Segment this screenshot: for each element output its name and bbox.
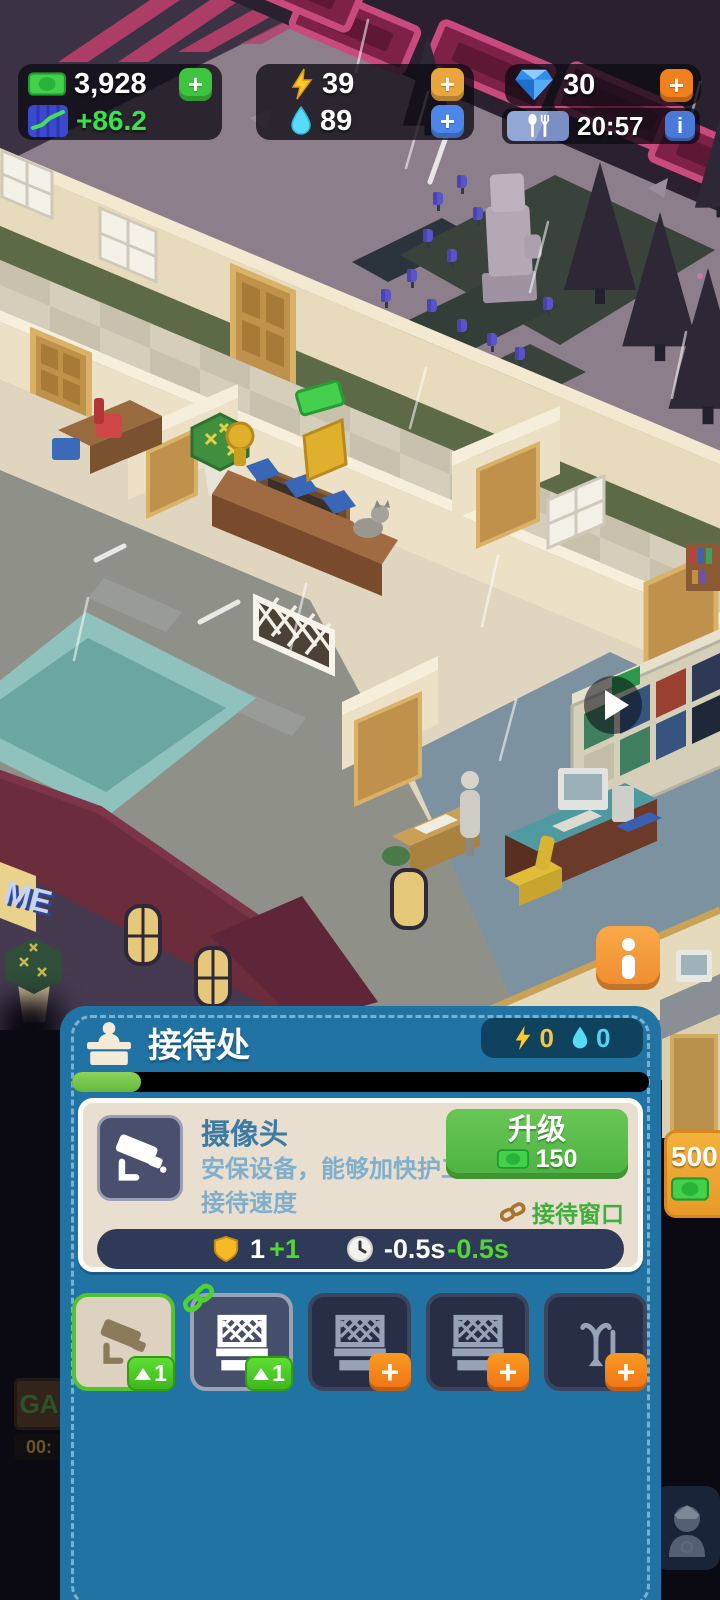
time-panel: 20:57 i [502, 108, 700, 144]
buy-item-badge: + [487, 1353, 529, 1391]
dimmed-event-sign[interactable]: GA 00: [14, 1378, 64, 1460]
upgrade-label: 升级 [508, 1115, 566, 1145]
energy-water-panel: 39 + 89 + [256, 64, 474, 140]
linked-target[interactable]: 接待窗口 [500, 1195, 624, 1229]
room-info-button[interactable] [596, 926, 660, 990]
speed-value: -0.5s [384, 1234, 446, 1265]
upgrade-button[interactable]: 升级 150 [446, 1109, 628, 1179]
energy-icon [290, 68, 314, 100]
gems-panel: 30 + [505, 64, 701, 106]
energy-value: 39 [322, 68, 354, 101]
slot-reception-window-owned[interactable]: 1 [190, 1293, 293, 1391]
reception-panel: 接待处 0 0 摄像头 安保设备，能够加快护工的 接待速度 [60, 1006, 661, 1600]
slot-security-camera[interactable]: 1 [72, 1293, 175, 1391]
clock-value: 20:57 [577, 111, 644, 142]
time-info-button[interactable]: i [665, 111, 695, 141]
reception-desk-icon [82, 1020, 136, 1066]
money-icon [497, 1149, 529, 1169]
item-description-line2: 接待速度 [201, 1183, 297, 1218]
add-money-button[interactable]: + [179, 68, 212, 101]
buy-spot-price: 500 [671, 1141, 718, 1173]
dimmed-staff-button[interactable] [654, 1486, 720, 1570]
income-value: +86.2 [76, 105, 147, 137]
money-icon [671, 1177, 709, 1201]
speed-bonus: -0.5s [447, 1234, 509, 1265]
slot-coat-rack-locked[interactable]: + [544, 1293, 647, 1391]
money-icon [28, 72, 66, 96]
shield-value: 1 [250, 1234, 265, 1265]
water-value: 89 [320, 105, 352, 138]
gem-icon [513, 68, 555, 102]
item-stats-bar: 1+1 -0.5s-0.5s [97, 1229, 624, 1269]
chain-link-icon [500, 1199, 526, 1225]
slot-reception-window-locked[interactable]: + [426, 1293, 529, 1391]
security-camera-icon [109, 1127, 171, 1189]
linked-target-label: 接待窗口 [532, 1195, 624, 1229]
slot-reception-window-locked[interactable]: + [308, 1293, 411, 1391]
room-progress-fill [72, 1072, 141, 1092]
event-sign-timer: 00: [14, 1434, 64, 1460]
upgrade-level-badge: 1 [245, 1356, 293, 1391]
panel-header: 接待处 [82, 1018, 250, 1067]
add-water-button[interactable]: + [431, 105, 464, 138]
item-name: 摄像头 [201, 1111, 288, 1153]
room-title: 接待处 [148, 1018, 250, 1067]
buy-item-badge: + [369, 1353, 411, 1391]
buy-spot-button[interactable]: 500 [664, 1130, 720, 1218]
room-consumption: 0 0 [481, 1018, 643, 1058]
water-icon [290, 106, 312, 136]
shield-icon [212, 1235, 240, 1263]
shield-bonus: +1 [269, 1234, 300, 1265]
play-icon [605, 690, 629, 720]
info-icon [622, 938, 635, 951]
nurse-icon [663, 1499, 711, 1557]
water-icon [572, 1026, 588, 1050]
play-button[interactable] [584, 676, 642, 734]
item-icon-tile [97, 1115, 183, 1201]
chain-link-icon [179, 1280, 218, 1316]
dim-overlay-left [0, 1030, 60, 1600]
meal-time-badge [507, 111, 569, 141]
energy-icon [514, 1025, 532, 1051]
money-panel: 3,928 + +86.2 [18, 64, 222, 140]
level-up-icon [135, 1368, 151, 1380]
add-energy-button[interactable]: + [431, 68, 464, 101]
upgrade-cost: 150 [536, 1145, 578, 1174]
bookshelf [686, 543, 720, 591]
room-water-value: 0 [596, 1023, 610, 1054]
room-progress-bar [72, 1072, 649, 1092]
game-screen: ME ME GA 00: 500 [0, 0, 720, 1600]
level-up-icon [253, 1368, 269, 1380]
buy-item-badge: + [605, 1353, 647, 1391]
gems-value: 30 [563, 69, 595, 102]
clock-icon [346, 1235, 374, 1263]
add-gems-button[interactable]: + [660, 69, 693, 102]
upgrade-level-badge: 1 [127, 1356, 175, 1391]
money-value: 3,928 [74, 68, 147, 101]
item-card: 摄像头 安保设备，能够加快护工的 接待速度 升级 150 接待窗口 [78, 1098, 643, 1272]
event-sign-label: GA [14, 1378, 64, 1430]
room-energy-value: 0 [540, 1023, 554, 1054]
utensils-icon [525, 114, 551, 138]
income-chart-icon [28, 105, 68, 137]
